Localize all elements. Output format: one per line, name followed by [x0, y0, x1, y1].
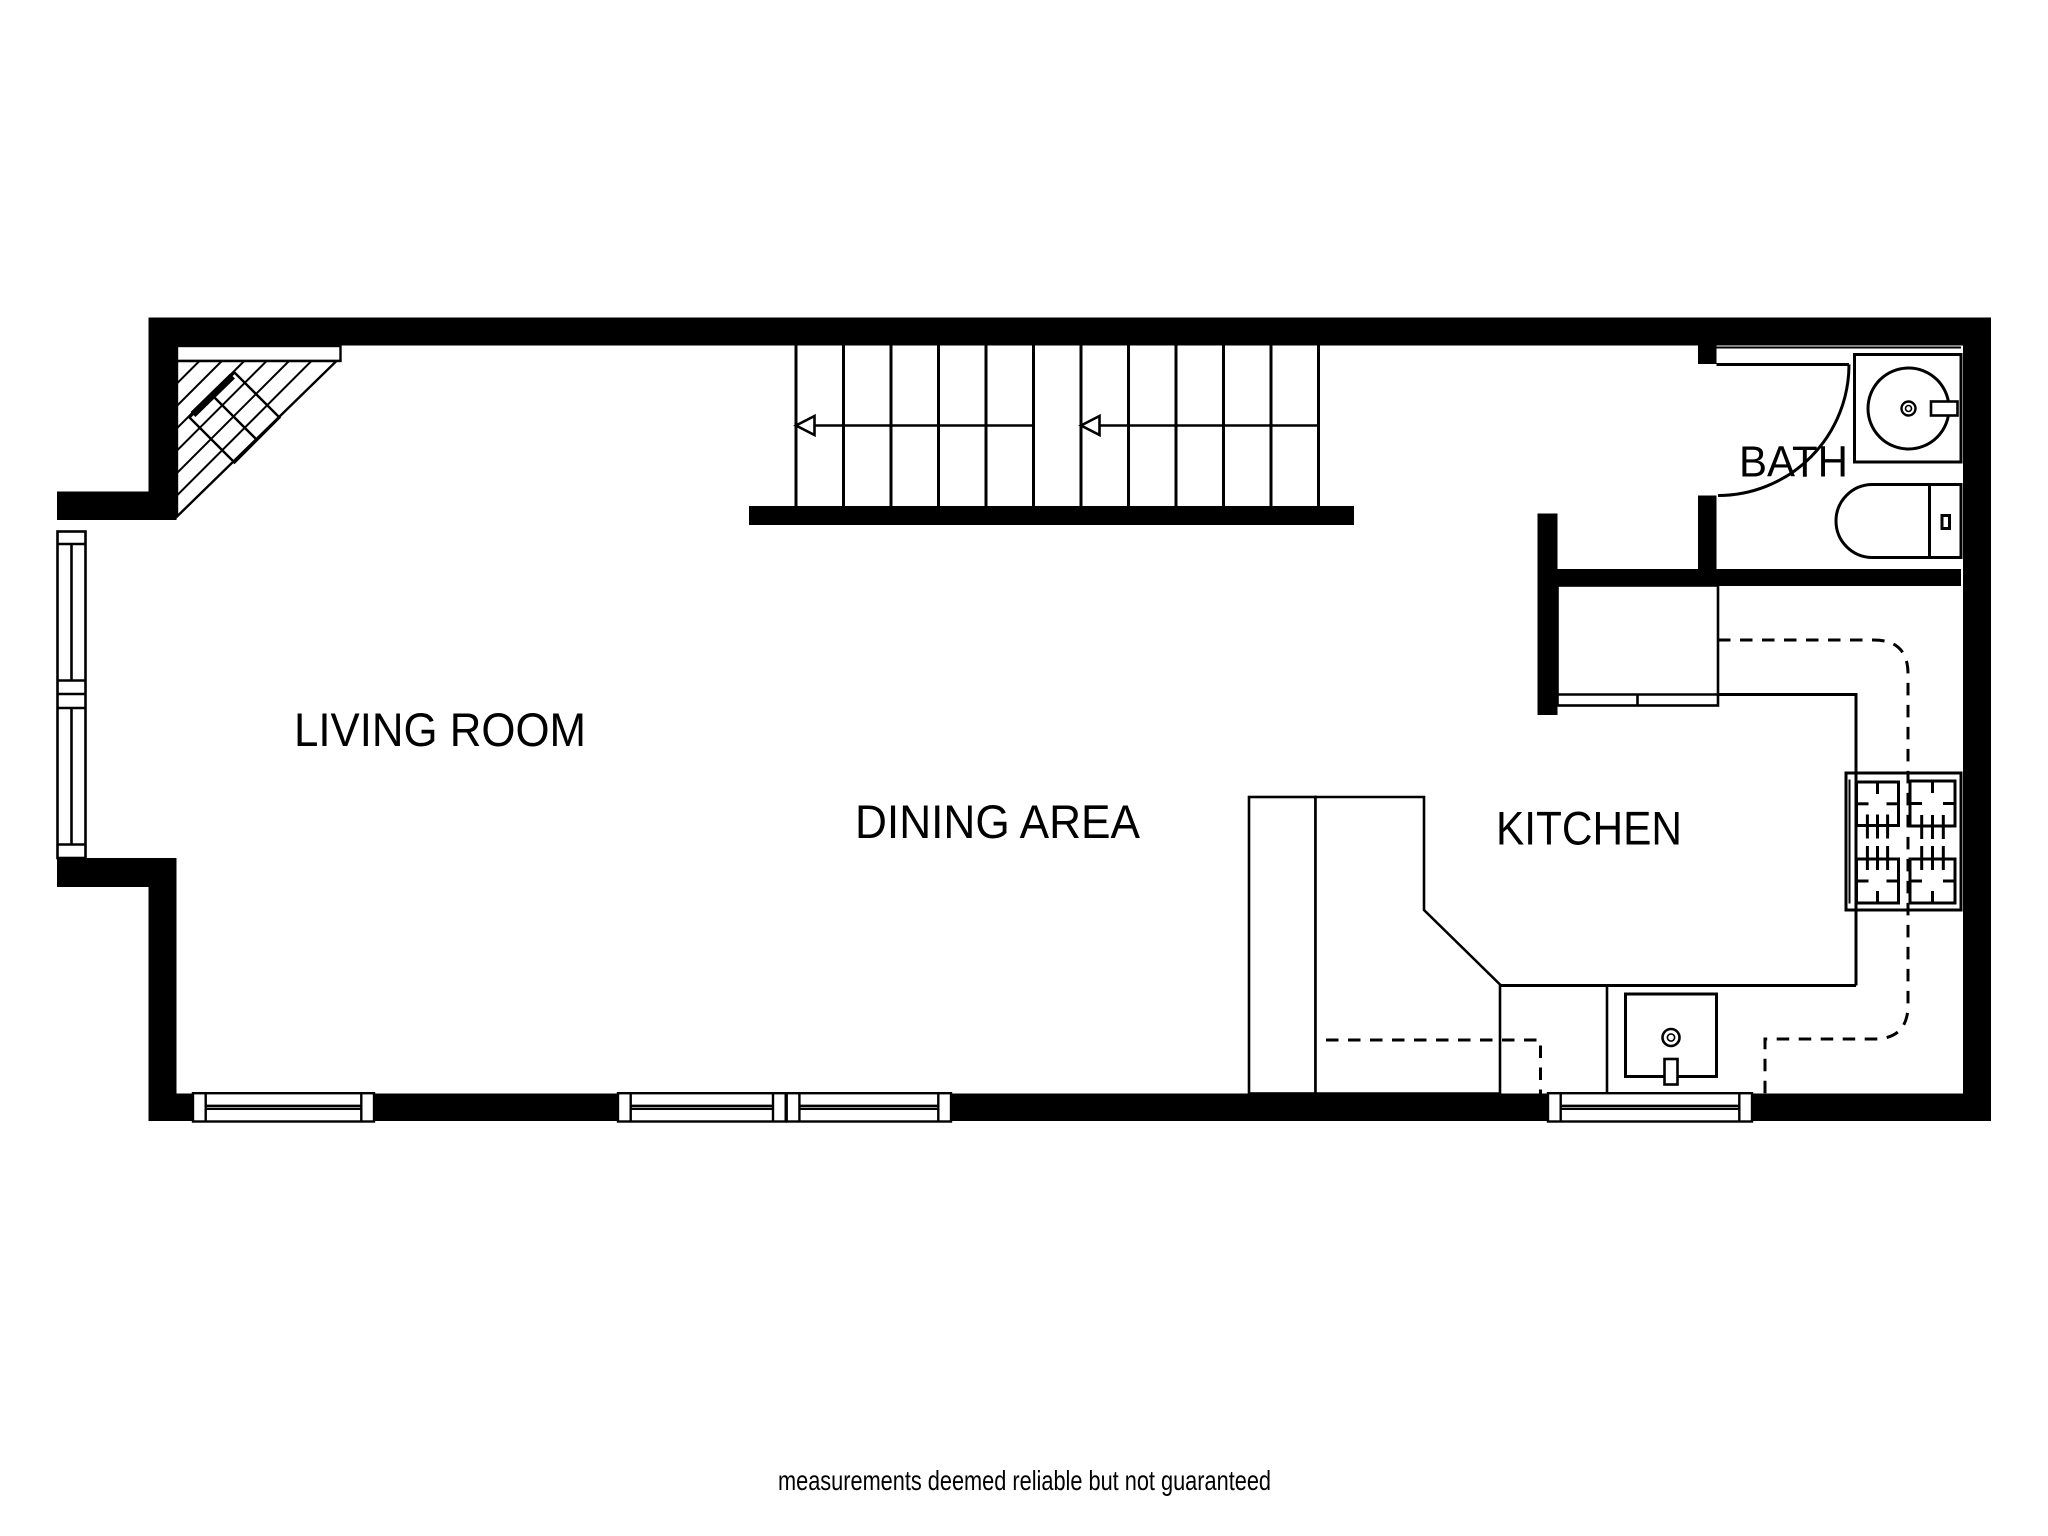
svg-text:BATH: BATH [1739, 439, 1848, 487]
svg-text:DINING AREA: DINING AREA [855, 796, 1140, 849]
svg-text:KITCHEN: KITCHEN [1496, 803, 1682, 856]
svg-text:LIVING ROOM: LIVING ROOM [294, 704, 586, 757]
svg-text:measurements deemed reliable b: measurements deemed reliable but not gua… [778, 1465, 1271, 1496]
